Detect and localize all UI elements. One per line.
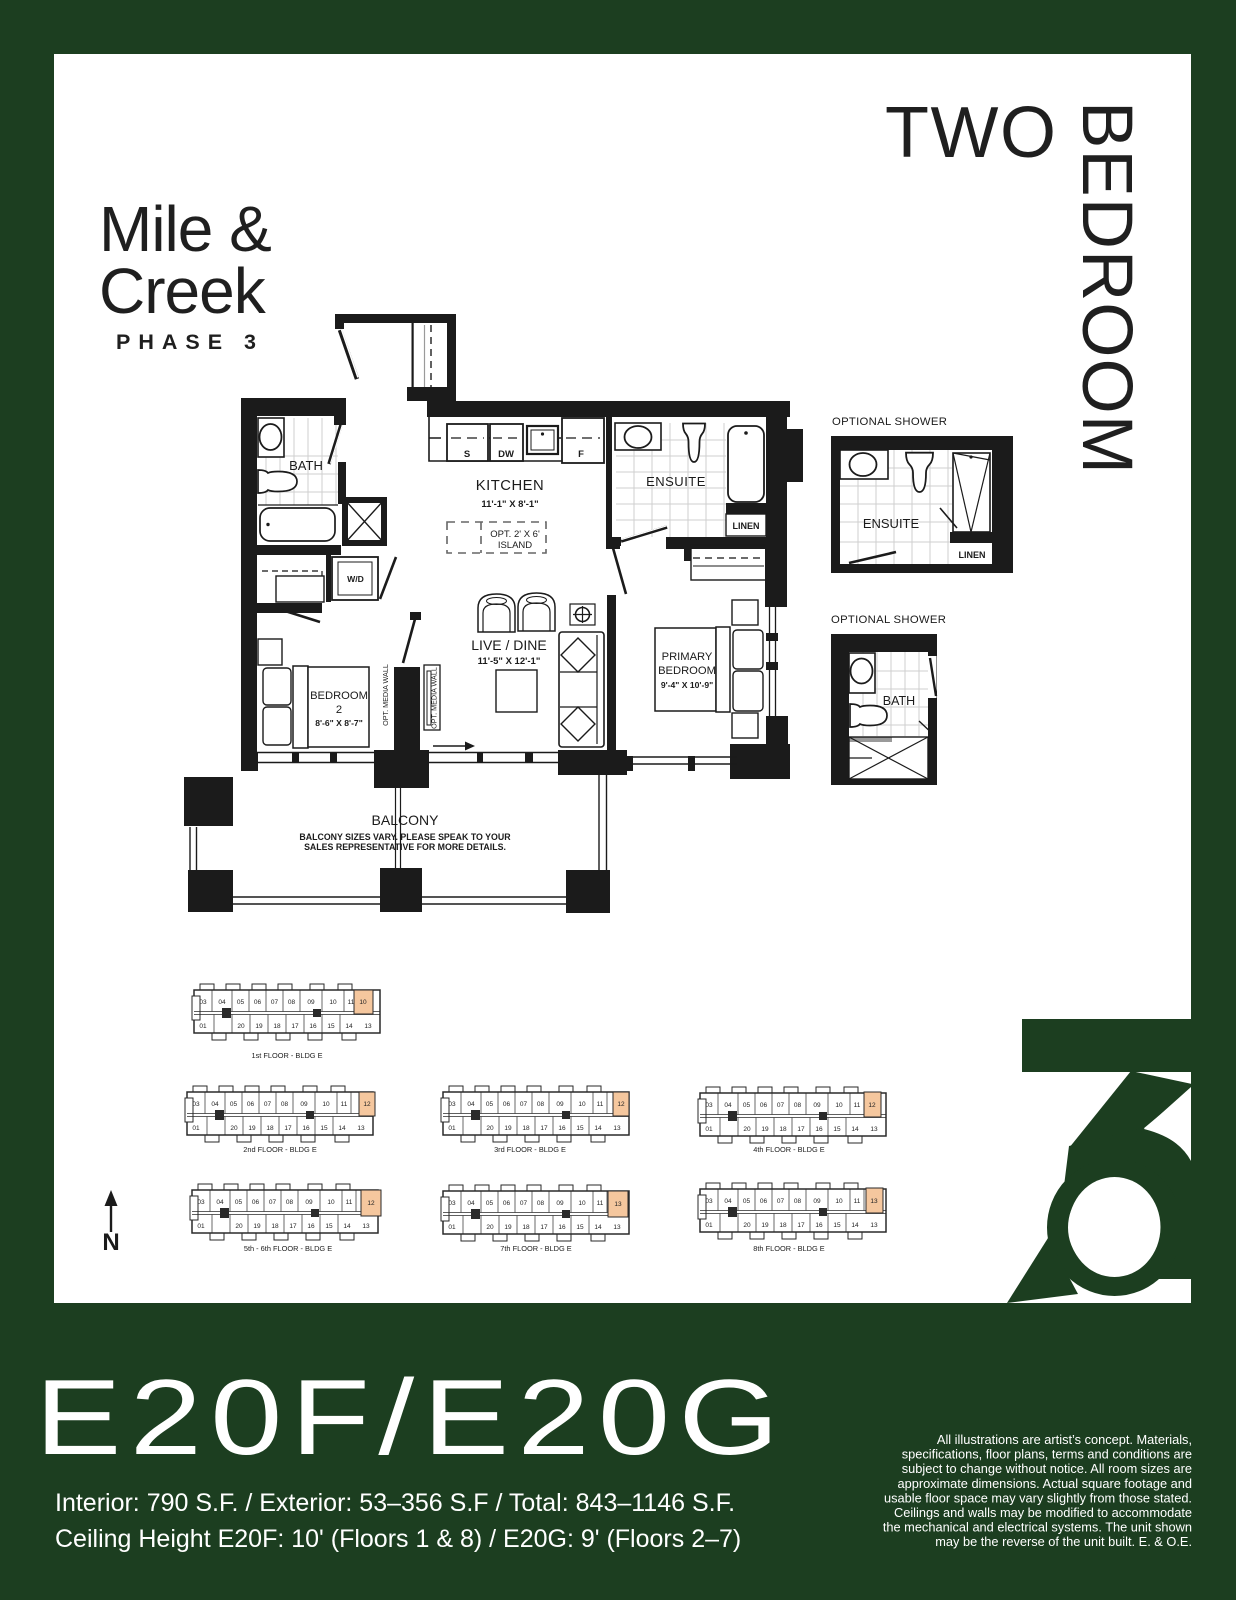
svg-text:BATH: BATH (289, 458, 323, 473)
svg-text:LIVE / DINE: LIVE / DINE (471, 637, 546, 653)
svg-text:TWO: TWO (885, 93, 1057, 173)
svg-text:SALES REPRESENTATIVE FOR MORE: SALES REPRESENTATIVE FOR MORE DETAILS. (304, 842, 506, 852)
svg-text:Ceilings and walls may be modi: Ceilings and walls may be modified to ac… (894, 1505, 1192, 1520)
svg-text:7th FLOOR - BLDG E: 7th FLOOR - BLDG E (500, 1244, 572, 1253)
svg-text:BEDROOM: BEDROOM (1067, 101, 1146, 475)
svg-text:13: 13 (870, 1198, 878, 1205)
svg-text:E20F/E20G: E20F/E20G (35, 1358, 788, 1478)
svg-text:F: F (578, 449, 584, 460)
svg-text:10: 10 (359, 999, 367, 1006)
svg-text:OPT. MEDIA WALL: OPT. MEDIA WALL (381, 664, 390, 726)
svg-text:12: 12 (363, 1101, 371, 1108)
svg-text:12: 12 (868, 1102, 876, 1109)
svg-text:the mechanical and electrical: the mechanical and electrical systems. T… (883, 1520, 1192, 1535)
svg-text:9'-4" X 10'-9": 9'-4" X 10'-9" (661, 680, 713, 690)
svg-text:may be the reverse of the unit: may be the reverse of the unit built. E.… (935, 1534, 1192, 1549)
svg-text:All illustrations are artist’s: All illustrations are artist’s concept. … (937, 1432, 1192, 1447)
svg-text:2nd FLOOR - BLDG E: 2nd FLOOR - BLDG E (243, 1145, 317, 1154)
svg-text:BATH: BATH (883, 694, 915, 708)
svg-text:11'-5" X 12'-1": 11'-5" X 12'-1" (478, 656, 541, 667)
svg-text:8th FLOOR - BLDG E: 8th FLOOR - BLDG E (753, 1244, 825, 1253)
svg-text:12: 12 (367, 1200, 375, 1207)
svg-text:OPTIONAL SHOWER: OPTIONAL SHOWER (831, 614, 946, 626)
svg-text:PHASE 3: PHASE 3 (116, 330, 264, 354)
svg-text:KITCHEN: KITCHEN (476, 478, 544, 494)
svg-text:usable floor space may vary sl: usable floor space may vary slightly fro… (884, 1490, 1192, 1505)
svg-text:LINEN: LINEN (733, 521, 760, 531)
svg-text:BALCONY SIZES VARY. PLEASE SPE: BALCONY SIZES VARY. PLEASE SPEAK TO YOUR (299, 832, 511, 842)
svg-text:4th FLOOR - BLDG E: 4th FLOOR - BLDG E (753, 1145, 825, 1154)
svg-text:OPT. 2' X 6': OPT. 2' X 6' (490, 529, 540, 540)
svg-text:specifications, floor plans, t: specifications, floor plans, terms and c… (902, 1447, 1192, 1462)
svg-text:subject to change without noti: subject to change without notice. All ro… (902, 1461, 1192, 1476)
svg-text:BEDROOM: BEDROOM (310, 690, 368, 702)
svg-text:PRIMARY: PRIMARY (662, 651, 713, 663)
svg-text:ENSUITE: ENSUITE (646, 474, 706, 489)
svg-text:LINEN: LINEN (959, 550, 986, 560)
svg-text:3rd FLOOR - BLDG E: 3rd FLOOR - BLDG E (494, 1145, 566, 1154)
svg-text:DW: DW (498, 449, 514, 460)
svg-text:W/D: W/D (347, 574, 364, 584)
svg-text:8'-6" X 8'-7": 8'-6" X 8'-7" (315, 718, 363, 728)
svg-text:S: S (464, 449, 470, 460)
svg-text:BEDROOM: BEDROOM (658, 665, 716, 677)
svg-text:11'-1" X 8'-1": 11'-1" X 8'-1" (481, 499, 538, 510)
svg-text:Creek: Creek (99, 255, 267, 327)
svg-text:1st FLOOR - BLDG E: 1st FLOOR - BLDG E (251, 1051, 322, 1060)
svg-text:OPT. MEDIA WALL: OPT. MEDIA WALL (430, 667, 439, 729)
svg-text:2: 2 (336, 704, 342, 716)
svg-text:Interior: 790 S.F. / Exterio: Interior: 790 S.F. / Exterior: 53–356 S.… (55, 1489, 735, 1517)
svg-text:Ceiling Height E20F: 10' (Floo: Ceiling Height E20F: 10' (Floors 1 & 8) … (55, 1525, 741, 1553)
svg-text:ENSUITE: ENSUITE (863, 516, 920, 531)
svg-text:12: 12 (617, 1101, 625, 1108)
svg-text:BALCONY: BALCONY (372, 812, 440, 828)
svg-text:OPTIONAL SHOWER: OPTIONAL SHOWER (832, 416, 947, 428)
svg-text:5th - 6th FLOOR - BLDG E: 5th - 6th FLOOR - BLDG E (244, 1244, 332, 1253)
svg-text:approximate dimensions. Actua: approximate dimensions. Actual square fo… (897, 1476, 1192, 1491)
svg-text:ISLAND: ISLAND (498, 540, 532, 551)
svg-text:N: N (102, 1229, 119, 1256)
svg-text:13: 13 (614, 1201, 622, 1208)
